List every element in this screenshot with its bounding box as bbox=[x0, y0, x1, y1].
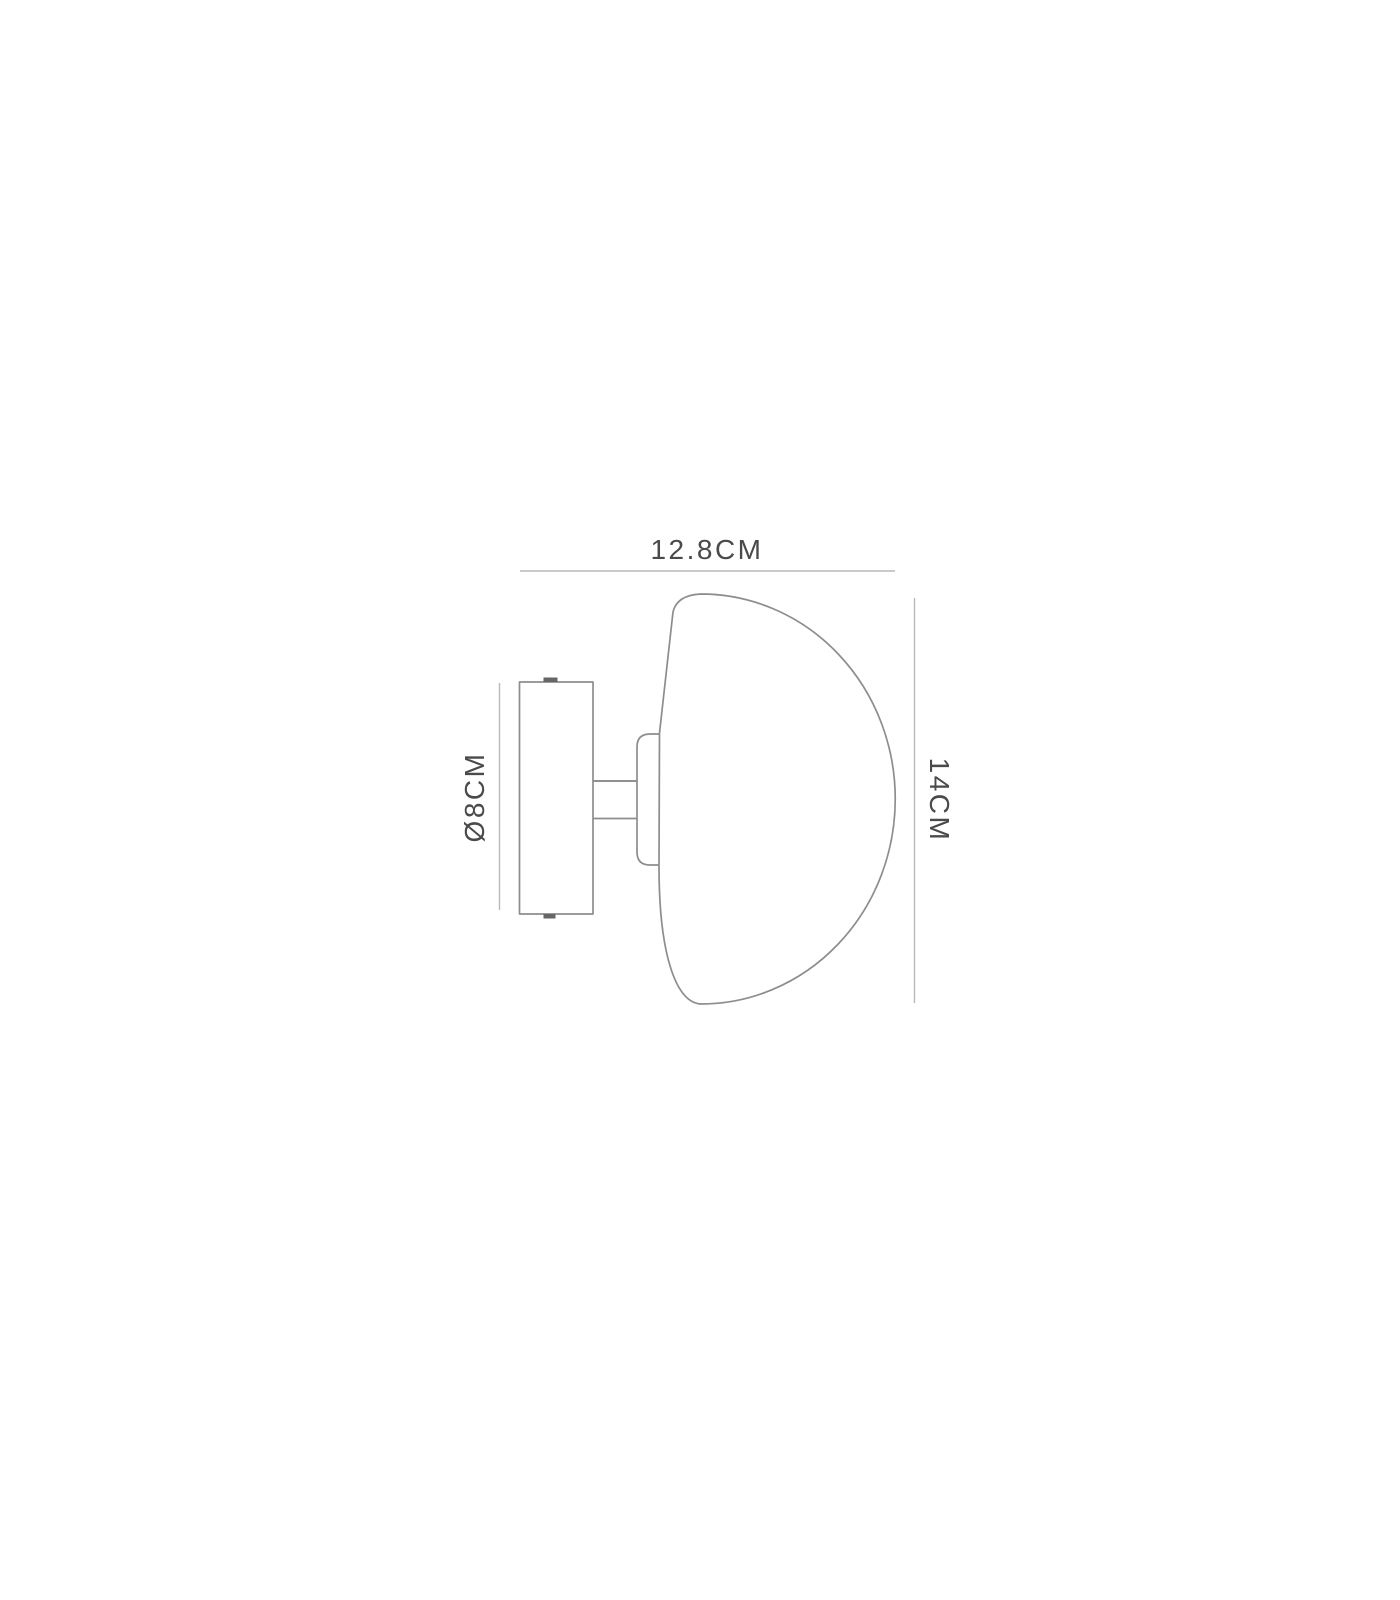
dimension-annotations: 12.8CM 14CM Ø8CM bbox=[459, 534, 955, 1003]
wall-plate-outline bbox=[520, 682, 594, 914]
shade-outline bbox=[659, 594, 895, 1004]
height-dimension-label: 14CM bbox=[924, 758, 955, 843]
fixture-drawing bbox=[520, 594, 896, 1004]
lamp-dimension-diagram: 12.8CM 14CM Ø8CM bbox=[0, 0, 1400, 1600]
plate-bottom-screw bbox=[544, 914, 556, 919]
socket-outline bbox=[637, 734, 660, 865]
plate-top-screw bbox=[544, 678, 558, 683]
width-dimension-label: 12.8CM bbox=[650, 534, 763, 565]
diameter-dimension-label: Ø8CM bbox=[459, 752, 490, 843]
dimension-drawing-svg: 12.8CM 14CM Ø8CM bbox=[0, 0, 1400, 1600]
